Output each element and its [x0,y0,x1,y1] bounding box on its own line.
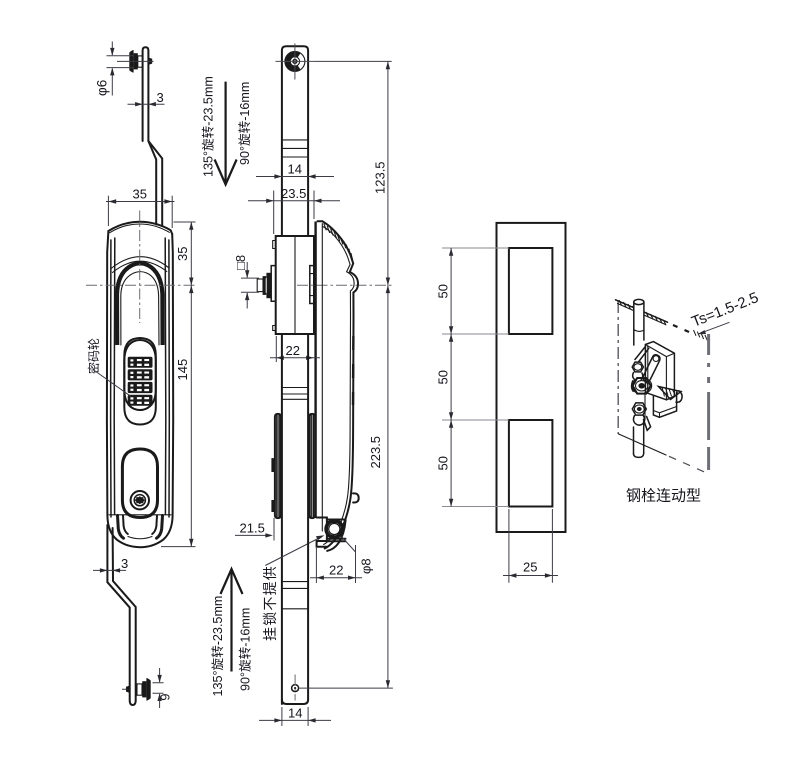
svg-text:22: 22 [329,563,343,578]
svg-text:φ8: φ8 [359,558,374,574]
svg-text:密码轮: 密码轮 [86,338,101,374]
svg-text:50: 50 [436,284,451,298]
svg-text:50: 50 [436,370,451,384]
svg-text:123.5: 123.5 [373,161,388,194]
svg-text:φ6: φ6 [95,80,110,96]
svg-text:35: 35 [133,187,147,202]
svg-text:14: 14 [288,162,302,177]
svg-text:3: 3 [157,90,164,105]
svg-text:23.5: 23.5 [281,186,306,201]
svg-text:35: 35 [175,247,190,261]
svg-text:6: 6 [158,694,173,701]
svg-text:14: 14 [288,705,302,720]
svg-text:□8: □8 [233,255,248,270]
svg-text:22: 22 [286,343,300,358]
svg-text:90°旋转-16mm: 90°旋转-16mm [238,82,252,165]
svg-text:3: 3 [121,556,128,571]
svg-text:135°旋转-23.5mm: 135°旋转-23.5mm [211,596,225,697]
svg-text:50: 50 [436,456,451,470]
svg-text:145: 145 [175,359,190,381]
svg-text:钢栓连动型: 钢栓连动型 [626,488,701,505]
svg-text:135°旋转-23.5mm: 135°旋转-23.5mm [202,76,216,177]
svg-text:25: 25 [523,560,537,575]
svg-text:21.5: 21.5 [240,521,265,536]
svg-text:挂锁不提供: 挂锁不提供 [262,565,278,641]
svg-text:90°旋转-16mm: 90°旋转-16mm [239,608,253,691]
svg-text:223.5: 223.5 [368,436,383,469]
